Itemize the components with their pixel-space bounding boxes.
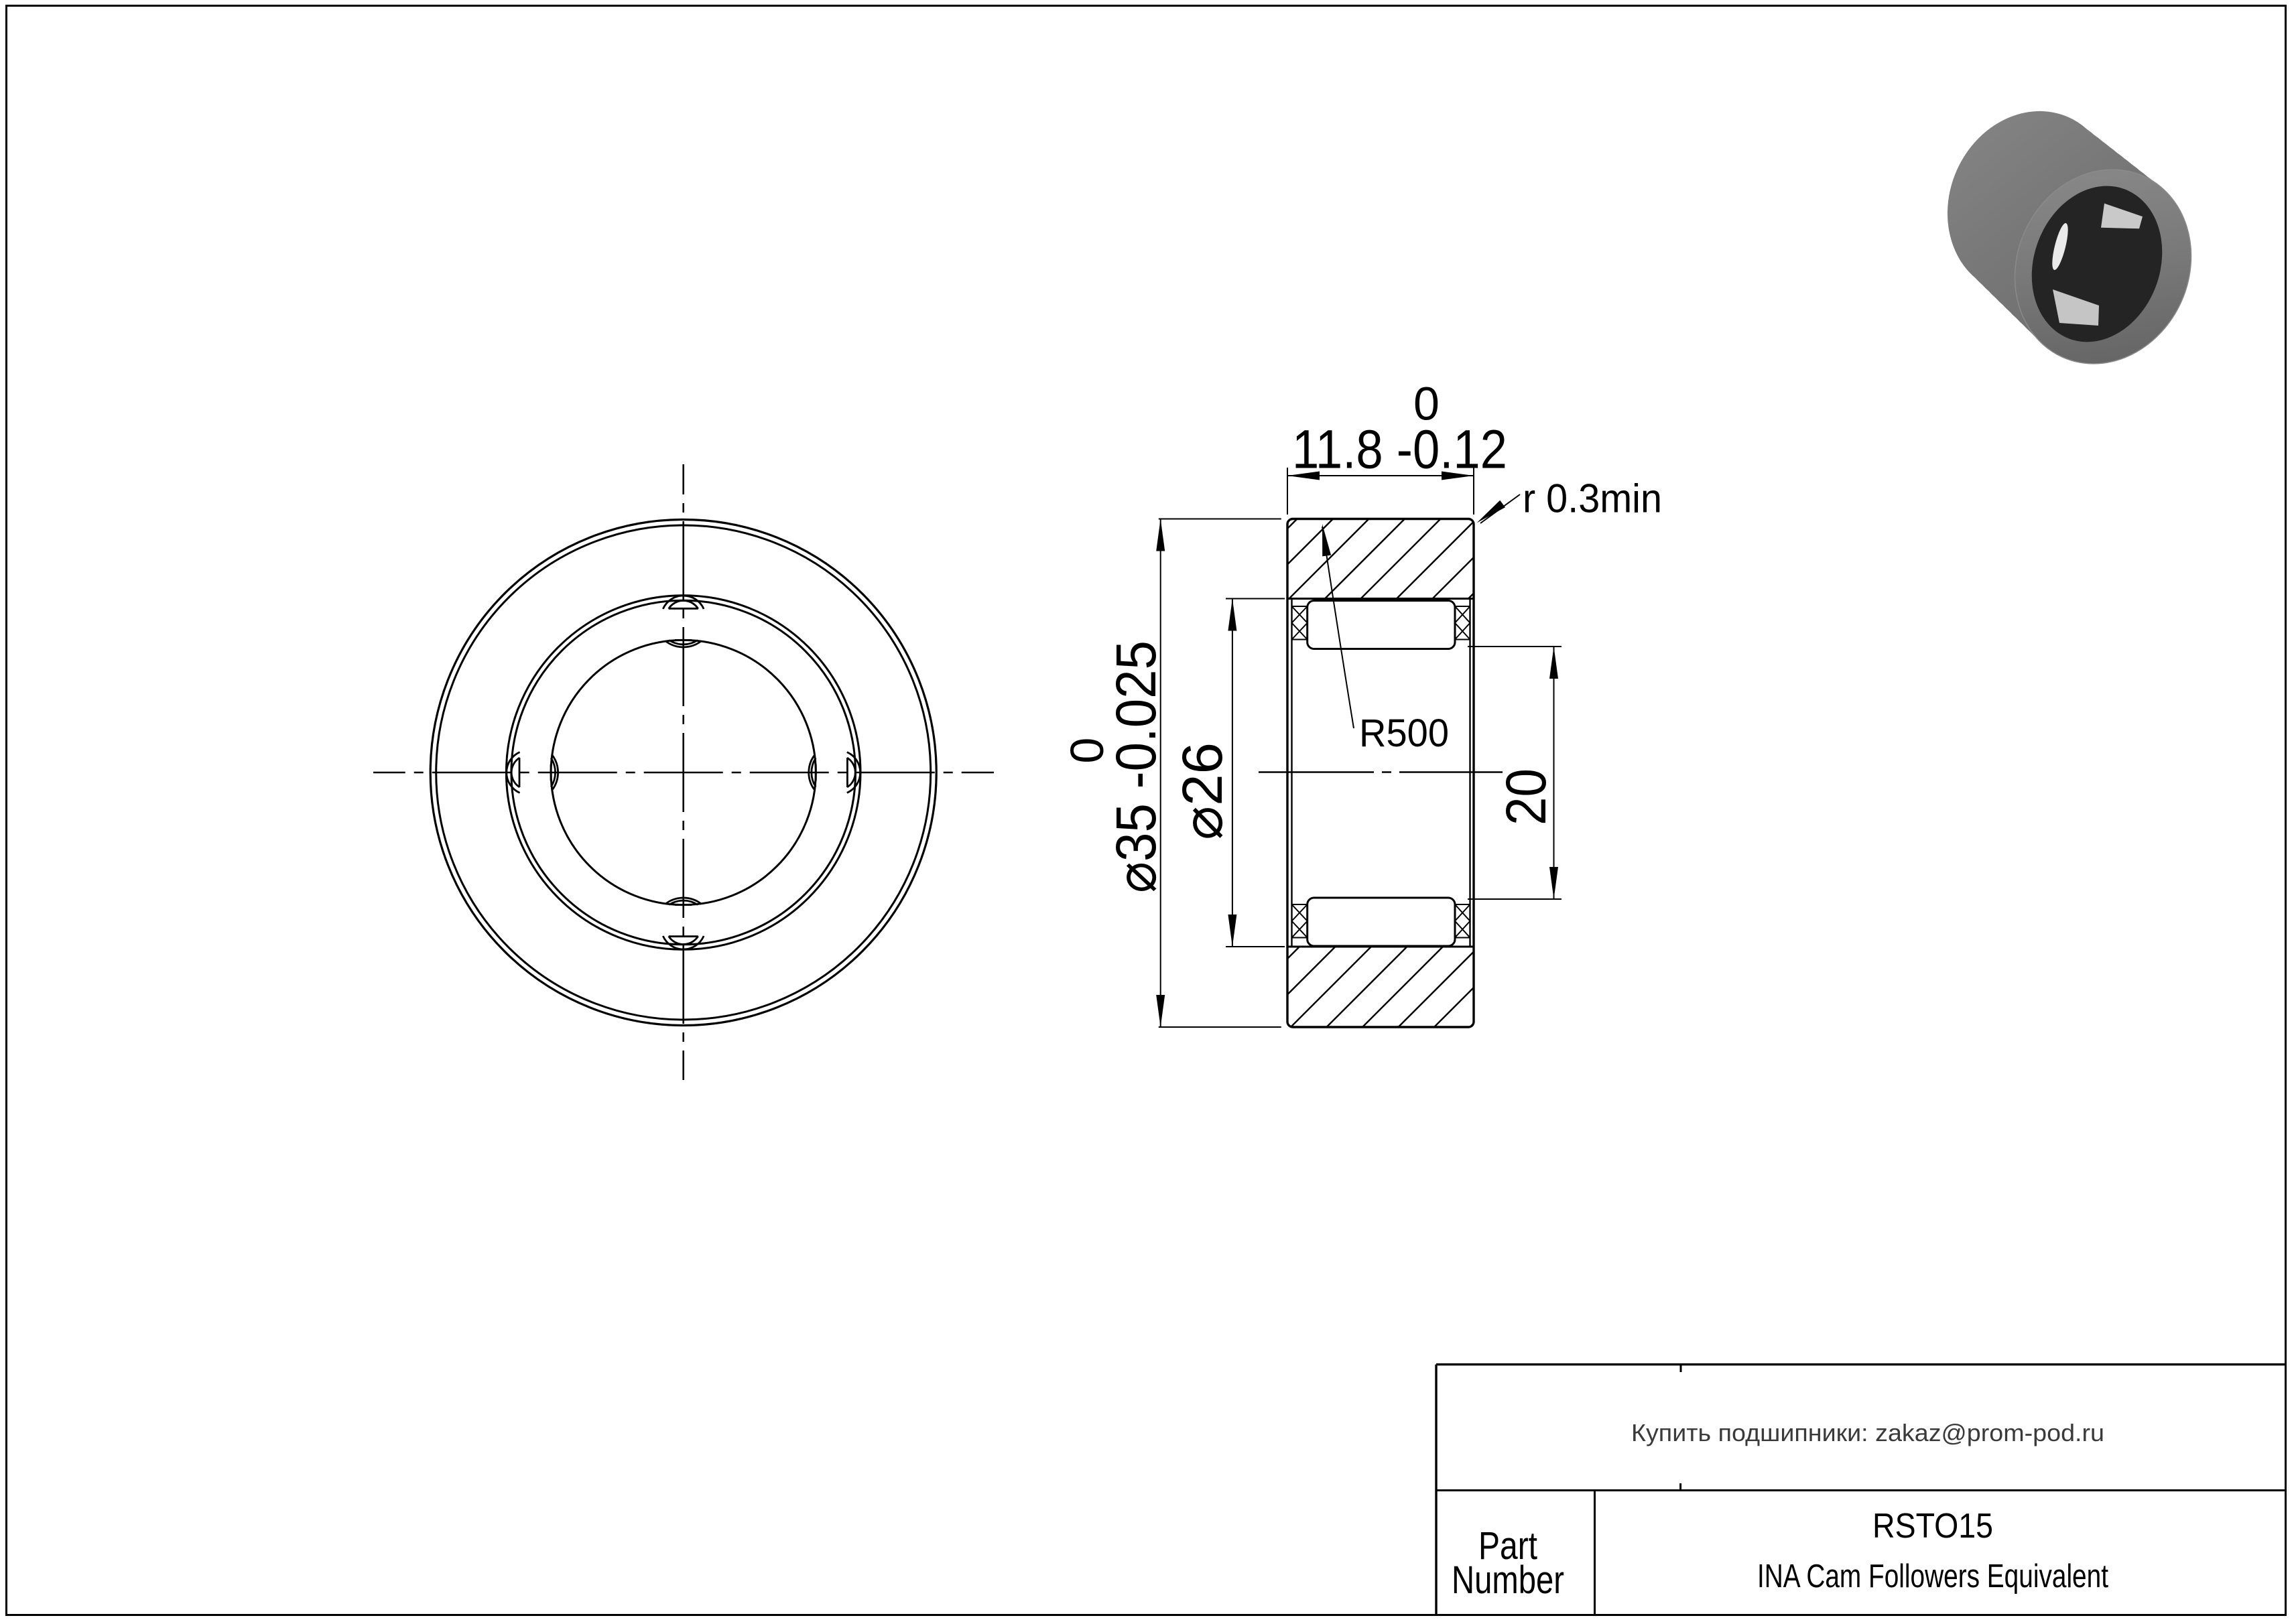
svg-text:11.8 -0.12: 11.8 -0.12 — [1292, 419, 1507, 480]
svg-text:⌀35 -0.025: ⌀35 -0.025 — [1104, 640, 1167, 893]
svg-text:RSTO15: RSTO15 — [1872, 1507, 1993, 1546]
svg-text:⌀26: ⌀26 — [1171, 742, 1234, 840]
svg-text:20: 20 — [1494, 768, 1557, 825]
svg-text:Купить подшипники: zakaz@prom-: Купить подшипники: zakaz@prom-pod.ru — [1631, 1419, 2104, 1446]
svg-text:0: 0 — [1413, 378, 1440, 430]
svg-text:INA Cam Followers Equivalent: INA Cam Followers Equivalent — [1757, 1558, 2108, 1595]
svg-text:R500: R500 — [1359, 712, 1449, 755]
svg-text:r 0.3min: r 0.3min — [1523, 476, 1662, 521]
svg-text:Number: Number — [1452, 1558, 1564, 1602]
svg-text:0: 0 — [1061, 738, 1113, 764]
